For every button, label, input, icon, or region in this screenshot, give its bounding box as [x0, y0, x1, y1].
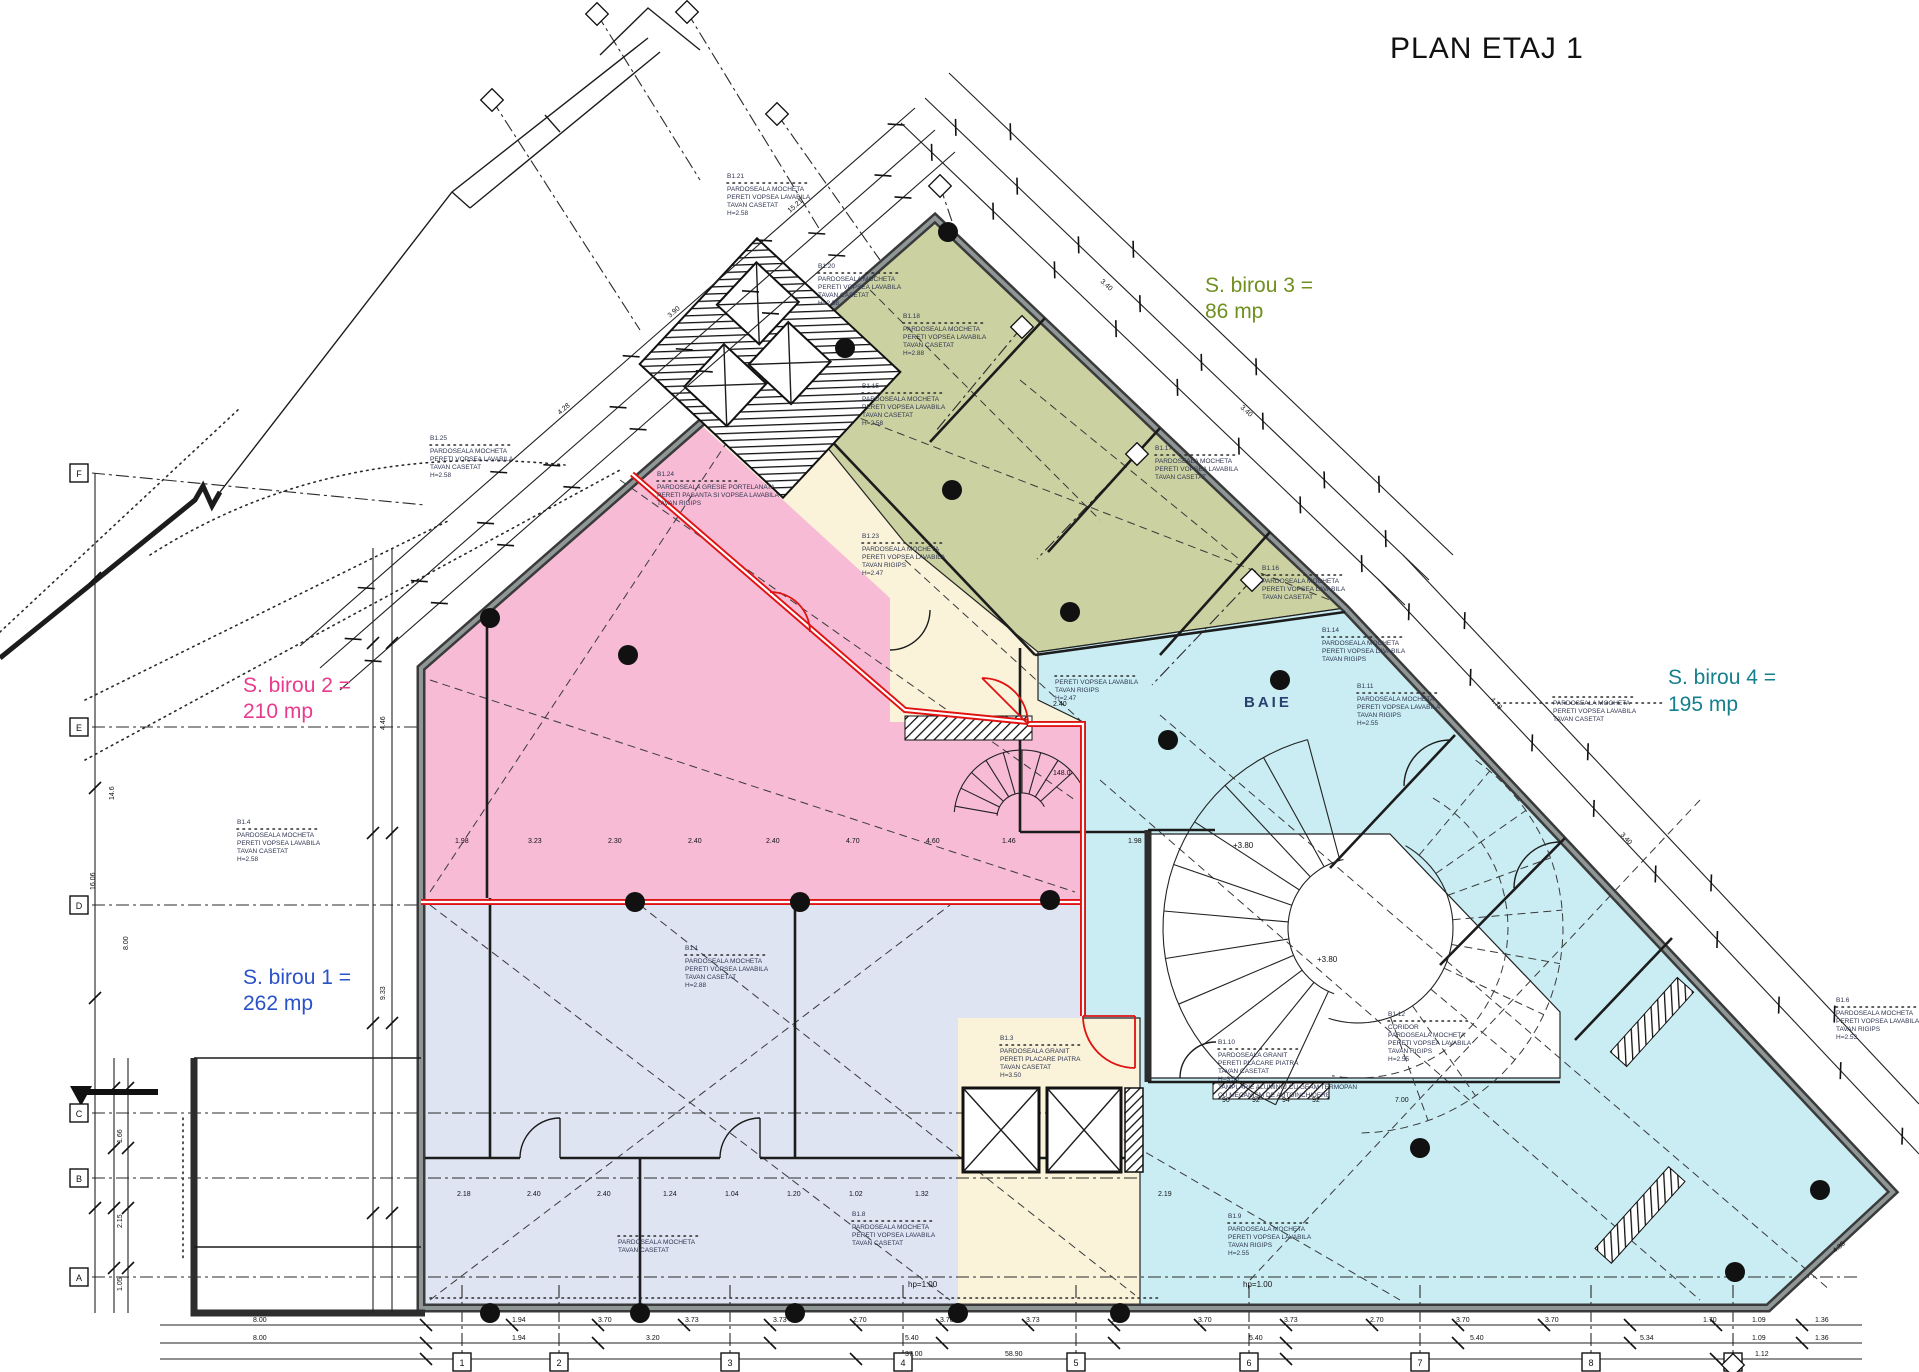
- dim-label: 7.00: [1395, 1097, 1409, 1104]
- column: [1040, 890, 1060, 910]
- svg-text:TAVAN RIGIPS: TAVAN RIGIPS: [1836, 1026, 1881, 1033]
- dim-chain: [108, 1058, 120, 1313]
- column: [480, 1303, 500, 1323]
- page-title: PLAN ETAJ 1: [1390, 32, 1584, 65]
- svg-text:TAVAN CASETAT: TAVAN CASETAT: [618, 1247, 669, 1254]
- dim-label: 16.06: [90, 872, 97, 890]
- svg-text:B1.1: B1.1: [685, 945, 699, 952]
- label-birou2-area: 210 mp: [243, 700, 313, 723]
- column: [1725, 1262, 1745, 1282]
- dim-label: 1.24: [663, 1191, 677, 1198]
- dim-label: 37.00: [905, 1351, 923, 1358]
- column: [938, 222, 958, 242]
- dim-label: 2.40: [597, 1191, 611, 1198]
- svg-text:PARDOSEALA MOCHETA: PARDOSEALA MOCHETA: [727, 186, 805, 193]
- label-birou4-name: S. birou 4 =: [1668, 666, 1776, 689]
- svg-text:CORIDOR: CORIDOR: [1388, 1024, 1419, 1031]
- dim-label: 8.00: [253, 1335, 267, 1342]
- dim-label: 4.70: [846, 838, 860, 845]
- dim-label: 4.46: [380, 716, 387, 730]
- svg-text:B1.6: B1.6: [1836, 997, 1850, 1004]
- dim-label: 2.40: [688, 838, 702, 845]
- svg-text:6: 6: [1246, 1358, 1251, 1368]
- dim-label: 14.6: [109, 786, 116, 800]
- svg-text:TAVAN CASETAT: TAVAN CASETAT: [1218, 1068, 1269, 1075]
- svg-text:PARDOSEALA MOCHETA: PARDOSEALA MOCHETA: [1155, 458, 1233, 465]
- floor-plan-page: 123456789FEDCBA B1.25PARDOSEALA MOCHETAP…: [0, 0, 1919, 1372]
- svg-text:B1.10: B1.10: [1218, 1039, 1235, 1046]
- svg-text:B: B: [76, 1174, 82, 1184]
- label-birou1-area: 262 mp: [243, 992, 313, 1015]
- grid-diamond: [481, 89, 504, 112]
- svg-text:TAVAN CASETAT: TAVAN CASETAT: [727, 202, 778, 209]
- svg-text:B1.23: B1.23: [862, 533, 879, 540]
- dim-label: 5.40: [1249, 1335, 1263, 1342]
- svg-text:H=2.58: H=2.58: [430, 472, 452, 479]
- label-birou1-name: S. birou 1 =: [243, 966, 351, 989]
- label-birou4-area: 195 mp: [1668, 693, 1738, 716]
- svg-text:PERETI VOPSEA LAVABILA: PERETI VOPSEA LAVABILA: [1228, 1234, 1312, 1241]
- svg-text:D: D: [76, 901, 83, 911]
- dim-label: 5.40: [905, 1335, 919, 1342]
- svg-text:A: A: [76, 1273, 82, 1283]
- dim-label: 4.60: [926, 838, 940, 845]
- svg-text:TAVAN RIGIPS: TAVAN RIGIPS: [862, 562, 907, 569]
- svg-text:TAVAN CASETAT: TAVAN CASETAT: [685, 974, 736, 981]
- svg-text:B1.12: B1.12: [1388, 1011, 1405, 1018]
- svg-text:PERETI PASANTA SI VOPSEA LAVAB: PERETI PASANTA SI VOPSEA LAVABILA: [657, 492, 780, 499]
- svg-text:H=2.55: H=2.55: [1357, 720, 1379, 727]
- svg-text:C: C: [76, 1109, 83, 1119]
- level-marker: hp=1.00: [908, 1280, 938, 1289]
- svg-text:5: 5: [1073, 1358, 1078, 1368]
- svg-text:B1.17: B1.17: [1155, 445, 1172, 452]
- svg-text:8: 8: [1588, 1358, 1593, 1368]
- svg-text:TAVAN RIGIPS: TAVAN RIGIPS: [1228, 1242, 1273, 1249]
- svg-text:TAMPLARIE ALUMINIU CU GEAM TER: TAMPLARIE ALUMINIU CU GEAM TERMOPAN: [1218, 1084, 1357, 1091]
- svg-text:TAVAN RIGIPS: TAVAN RIGIPS: [657, 500, 702, 507]
- dim-label: 1.98: [1128, 838, 1142, 845]
- annotation-block: B1.6PARDOSEALA MOCHETAPERETI VOPSEA LAVA…: [1836, 997, 1919, 1041]
- dim-label: 3.90: [667, 305, 682, 319]
- svg-text:PARDOSEALA MOCHETA: PARDOSEALA MOCHETA: [852, 1224, 930, 1231]
- svg-text:PARDOSEALA MOCHETA: PARDOSEALA MOCHETA: [1322, 640, 1400, 647]
- dim-label: 2.40: [527, 1191, 541, 1198]
- dim-label: 3.70: [1198, 1317, 1212, 1324]
- dim-label: 1.05: [117, 1277, 124, 1291]
- svg-text:H=2.47: H=2.47: [862, 570, 884, 577]
- svg-text:3: 3: [727, 1358, 732, 1368]
- dim-label: 3.23: [528, 838, 542, 845]
- svg-text:H=2.55: H=2.55: [1228, 1250, 1250, 1257]
- label-birou2-name: S. birou 2 =: [243, 674, 351, 697]
- label-baie: BAIE: [1244, 694, 1292, 711]
- level-marker: hp=1.00: [1243, 1280, 1273, 1289]
- svg-text:TAVAN CASETAT: TAVAN CASETAT: [1262, 594, 1313, 601]
- dim-label: 8.00: [123, 936, 130, 950]
- grid-diamond: [586, 3, 609, 26]
- svg-text:PARDOSEALA MOCHETA: PARDOSEALA MOCHETA: [430, 448, 508, 455]
- dim-label: 90: [1222, 1097, 1230, 1104]
- grid-diamond: [766, 103, 789, 126]
- dim-label: 2.70: [1370, 1317, 1384, 1324]
- label-birou3-area: 86 mp: [1205, 300, 1263, 323]
- svg-text:PERETI VOPSEA LAVABILA: PERETI VOPSEA LAVABILA: [1357, 704, 1441, 711]
- dim-label: 3.70: [598, 1317, 612, 1324]
- svg-text:PARDOSEALA MOCHETA: PARDOSEALA MOCHETA: [1836, 1010, 1914, 1017]
- dim-label: 3.70: [1456, 1317, 1470, 1324]
- dim-label: 2.70: [1112, 1317, 1126, 1324]
- svg-text:B1.25: B1.25: [430, 435, 447, 442]
- svg-text:PARDOSEALA GRANIT: PARDOSEALA GRANIT: [1218, 1052, 1288, 1059]
- dim-label: 2.18: [457, 1191, 471, 1198]
- svg-text:PARDOSEALA GRANIT: PARDOSEALA GRANIT: [1000, 1048, 1070, 1055]
- svg-text:PARDOSEALA MOCHETA: PARDOSEALA MOCHETA: [818, 276, 896, 283]
- column: [785, 1303, 805, 1323]
- dim-label: 3.73: [1026, 1317, 1040, 1324]
- svg-text:TAVAN CASETAT: TAVAN CASETAT: [1155, 474, 1206, 481]
- level-marker: +3.80: [1317, 955, 1338, 964]
- svg-text:H=3.50: H=3.50: [1000, 1072, 1022, 1079]
- svg-text:PERETI VOPSEA LAVABILA: PERETI VOPSEA LAVABILA: [1155, 466, 1239, 473]
- column: [1158, 730, 1178, 750]
- svg-text:TAVAN CASETAT: TAVAN CASETAT: [862, 412, 913, 419]
- svg-text:TAVAN RIGIPS: TAVAN RIGIPS: [1357, 712, 1402, 719]
- floor-plan-drawing: 123456789FEDCBA B1.25PARDOSEALA MOCHETAP…: [0, 0, 1919, 1372]
- level-marker: +3.80: [1233, 841, 1254, 850]
- column: [942, 480, 962, 500]
- svg-text:B1.18: B1.18: [903, 313, 920, 320]
- dim-label: 1.94: [512, 1317, 526, 1324]
- dim-label: 3.20: [646, 1335, 660, 1342]
- dim-label: 1.02: [849, 1191, 863, 1198]
- svg-text:H=2.58: H=2.58: [862, 420, 884, 427]
- dim-label: 3.73: [685, 1317, 699, 1324]
- dim-label: 148.0: [1053, 770, 1071, 777]
- column: [1060, 602, 1080, 622]
- dim-label: 1.09: [1752, 1335, 1766, 1342]
- dim-label: 2.70: [853, 1317, 867, 1324]
- dim-label: 58.90: [1005, 1351, 1023, 1358]
- svg-text:PERETI VOPSEA LAVABILA: PERETI VOPSEA LAVABILA: [862, 404, 946, 411]
- column: [618, 645, 638, 665]
- svg-text:F: F: [76, 469, 82, 479]
- svg-text:H=2.58: H=2.58: [818, 300, 840, 307]
- svg-text:PERETI VOPSEA LAVABILA: PERETI VOPSEA LAVABILA: [903, 334, 987, 341]
- svg-text:PERETI VOPSEA LAVABILA: PERETI VOPSEA LAVABILA: [1388, 1040, 1472, 1047]
- grid-diamond: [929, 175, 952, 198]
- dim-label: 1.70: [1703, 1317, 1717, 1324]
- dim-label: 5.40: [1470, 1335, 1484, 1342]
- svg-text:2: 2: [556, 1358, 561, 1368]
- svg-text:B1.16: B1.16: [1262, 565, 1279, 572]
- svg-text:B1.21: B1.21: [727, 173, 744, 180]
- dim-label: 3.73: [1284, 1317, 1298, 1324]
- svg-text:PERETI VOPSEA LAVABILA: PERETI VOPSEA LAVABILA: [1055, 679, 1139, 686]
- dim-label: 92: [1252, 1097, 1260, 1104]
- dim-label: 92: [1312, 1097, 1320, 1104]
- svg-text:PARDOSEALA MOCHETA: PARDOSEALA MOCHETA: [237, 832, 315, 839]
- svg-text:B1.4: B1.4: [237, 819, 251, 826]
- grid-diamond: [676, 1, 699, 24]
- svg-text:PARDOSEALA MOCHETA: PARDOSEALA MOCHETA: [685, 958, 763, 965]
- dim-label: 1.09: [1752, 1317, 1766, 1324]
- svg-text:7: 7: [1417, 1358, 1422, 1368]
- svg-text:PARDOSEALA MOCHETA: PARDOSEALA MOCHETA: [1228, 1226, 1306, 1233]
- svg-text:PARDOSEALA MOCHETA: PARDOSEALA MOCHETA: [862, 396, 940, 403]
- svg-text:PARDOSEALA MOCHETA: PARDOSEALA MOCHETA: [862, 546, 940, 553]
- dim-label: 1.36: [1815, 1335, 1829, 1342]
- dim-label: 1.98: [455, 838, 469, 845]
- svg-text:TAVAN CASETAT: TAVAN CASETAT: [852, 1240, 903, 1247]
- svg-text:PERETI VOPSEA LAVABILA: PERETI VOPSEA LAVABILA: [430, 456, 514, 463]
- dim-label: 3.40: [1239, 404, 1254, 418]
- svg-text:PERETI VOPSEA LAVABILA: PERETI VOPSEA LAVABILA: [1836, 1018, 1919, 1025]
- svg-text:PARDOSEALA GRESIE PORTELANATA: PARDOSEALA GRESIE PORTELANATA: [657, 484, 776, 491]
- dim-label: 3.73: [773, 1317, 787, 1324]
- dim-label: 2.40: [766, 838, 780, 845]
- svg-text:PERETI VOPSEA LAVABILA: PERETI VOPSEA LAVABILA: [685, 966, 769, 973]
- dim-label: 1.46: [1002, 838, 1016, 845]
- dim-chain: [367, 548, 379, 1313]
- svg-text:H=2.58: H=2.58: [237, 856, 259, 863]
- dim-label: 2.40: [1053, 701, 1067, 708]
- zone-fills: [421, 218, 1893, 1308]
- svg-text:TAVAN CASETAT: TAVAN CASETAT: [818, 292, 869, 299]
- dim-label: 3.70: [1545, 1317, 1559, 1324]
- dim-chain: [160, 1319, 1862, 1331]
- svg-text:TAVAN CASETAT: TAVAN CASETAT: [903, 342, 954, 349]
- svg-text:B1.3: B1.3: [1000, 1035, 1014, 1042]
- svg-text:H=2.53: H=2.53: [1836, 1034, 1858, 1041]
- dim-label: 1.12: [1755, 1351, 1769, 1358]
- dim-label: 9.33: [380, 986, 387, 1000]
- dim-label: 2.15: [117, 1214, 124, 1228]
- annotation-block: PARDOSEALA MOCHETAPERETI VOPSEA LAVABILA…: [1553, 697, 1637, 723]
- svg-text:E: E: [76, 723, 82, 733]
- dim-label: 1.36: [1815, 1317, 1829, 1324]
- svg-text:PERETI VOPSEA LAVABILA: PERETI VOPSEA LAVABILA: [1553, 708, 1637, 715]
- svg-text:B1.8: B1.8: [852, 1211, 866, 1218]
- svg-text:PARDOSEALA MOCHETA: PARDOSEALA MOCHETA: [618, 1239, 696, 1246]
- svg-text:B1.14: B1.14: [1322, 627, 1339, 634]
- dim-label: 1.20: [787, 1191, 801, 1198]
- dim-label: 1.66: [117, 1129, 124, 1143]
- annotation-block: B1.4PARDOSEALA MOCHETAPERETI VOPSEA LAVA…: [237, 819, 321, 863]
- svg-text:PERETI VOPSEA LAVABILA: PERETI VOPSEA LAVABILA: [862, 554, 946, 561]
- svg-text:B1.15: B1.15: [862, 383, 879, 390]
- svg-text:PERETI PLACARE PIATRA: PERETI PLACARE PIATRA: [1000, 1056, 1081, 1063]
- svg-text:B1.11: B1.11: [1357, 683, 1374, 690]
- dim-label: 2.19: [1158, 1191, 1172, 1198]
- dim-label: 8.00: [253, 1317, 267, 1324]
- svg-text:PERETI VOPSEA LAVABILA: PERETI VOPSEA LAVABILA: [818, 284, 902, 291]
- svg-text:PARDOSEALA MOCHETA: PARDOSEALA MOCHETA: [903, 326, 981, 333]
- column: [1270, 670, 1290, 690]
- annotation-block: B1.17PARDOSEALA MOCHETAPERETI VOPSEA LAV…: [1155, 445, 1239, 481]
- elevator-core-center: [963, 1088, 1143, 1172]
- dim-label: 3.40: [1099, 278, 1114, 292]
- svg-text:PERETI PLACARE PIATRA: PERETI PLACARE PIATRA: [1218, 1060, 1299, 1067]
- dim-label: 1.94: [512, 1335, 526, 1342]
- svg-text:4: 4: [900, 1358, 905, 1368]
- dim-label: 3.40: [1619, 832, 1633, 847]
- svg-text:H=2.55: H=2.55: [1388, 1056, 1410, 1063]
- column: [835, 338, 855, 358]
- dim-label: 5.34: [1640, 1335, 1654, 1342]
- svg-text:TAVAN RIGIPS: TAVAN RIGIPS: [1322, 656, 1367, 663]
- svg-text:B1.9: B1.9: [1228, 1213, 1242, 1220]
- column: [480, 608, 500, 628]
- svg-text:H=2.88: H=2.88: [903, 350, 925, 357]
- svg-text:TAVAN CASETAT: TAVAN CASETAT: [1553, 716, 1604, 723]
- column: [1810, 1180, 1830, 1200]
- dim-label: 94: [1282, 1097, 1290, 1104]
- dim-chain: [89, 473, 101, 1313]
- svg-text:PERETI VOPSEA LAVABILA: PERETI VOPSEA LAVABILA: [237, 840, 321, 847]
- label-birou3-name: S. birou 3 =: [1205, 274, 1313, 297]
- svg-text:TAVAN CASETAT: TAVAN CASETAT: [1000, 1064, 1051, 1071]
- dim-label: 2.30: [608, 838, 622, 845]
- dim-label: 3.70: [940, 1317, 954, 1324]
- column: [790, 892, 810, 912]
- svg-text:PARDOSEALA MOCHETA: PARDOSEALA MOCHETA: [1388, 1032, 1466, 1039]
- svg-text:B1.20: B1.20: [818, 263, 835, 270]
- svg-text:B1.24: B1.24: [657, 471, 674, 478]
- svg-text:H=2.58: H=2.58: [727, 210, 749, 217]
- dim-chain: [386, 548, 398, 1313]
- svg-text:PERETI VOPSEA LAVABILA: PERETI VOPSEA LAVABILA: [852, 1232, 936, 1239]
- column: [1410, 1138, 1430, 1158]
- svg-text:PERETI VOPSEA LAVABILA: PERETI VOPSEA LAVABILA: [1322, 648, 1406, 655]
- dim-chain: [160, 1337, 1862, 1349]
- svg-text:TAVAN CASETAT: TAVAN CASETAT: [430, 464, 481, 471]
- svg-text:PARDOSEALA MOCHETA: PARDOSEALA MOCHETA: [1357, 696, 1435, 703]
- column: [625, 892, 645, 912]
- svg-text:H=3.50: H=3.50: [1218, 1076, 1240, 1083]
- dim-chain: [122, 1058, 134, 1313]
- svg-text:H=2.88: H=2.88: [685, 982, 707, 989]
- svg-text:1: 1: [459, 1358, 464, 1368]
- svg-text:TAVAN RIGIPS: TAVAN RIGIPS: [1055, 687, 1100, 694]
- svg-text:TAVAN CASETAT: TAVAN CASETAT: [237, 848, 288, 855]
- column: [630, 1303, 650, 1323]
- dim-label: 1.04: [725, 1191, 739, 1198]
- svg-text:PERETI VOPSEA LAVABILA: PERETI VOPSEA LAVABILA: [1262, 586, 1346, 593]
- svg-text:PARDOSEALA MOCHETA: PARDOSEALA MOCHETA: [1262, 578, 1340, 585]
- svg-text:TAVAN RIGIPS: TAVAN RIGIPS: [1388, 1048, 1433, 1055]
- dim-label: 1.32: [915, 1191, 929, 1198]
